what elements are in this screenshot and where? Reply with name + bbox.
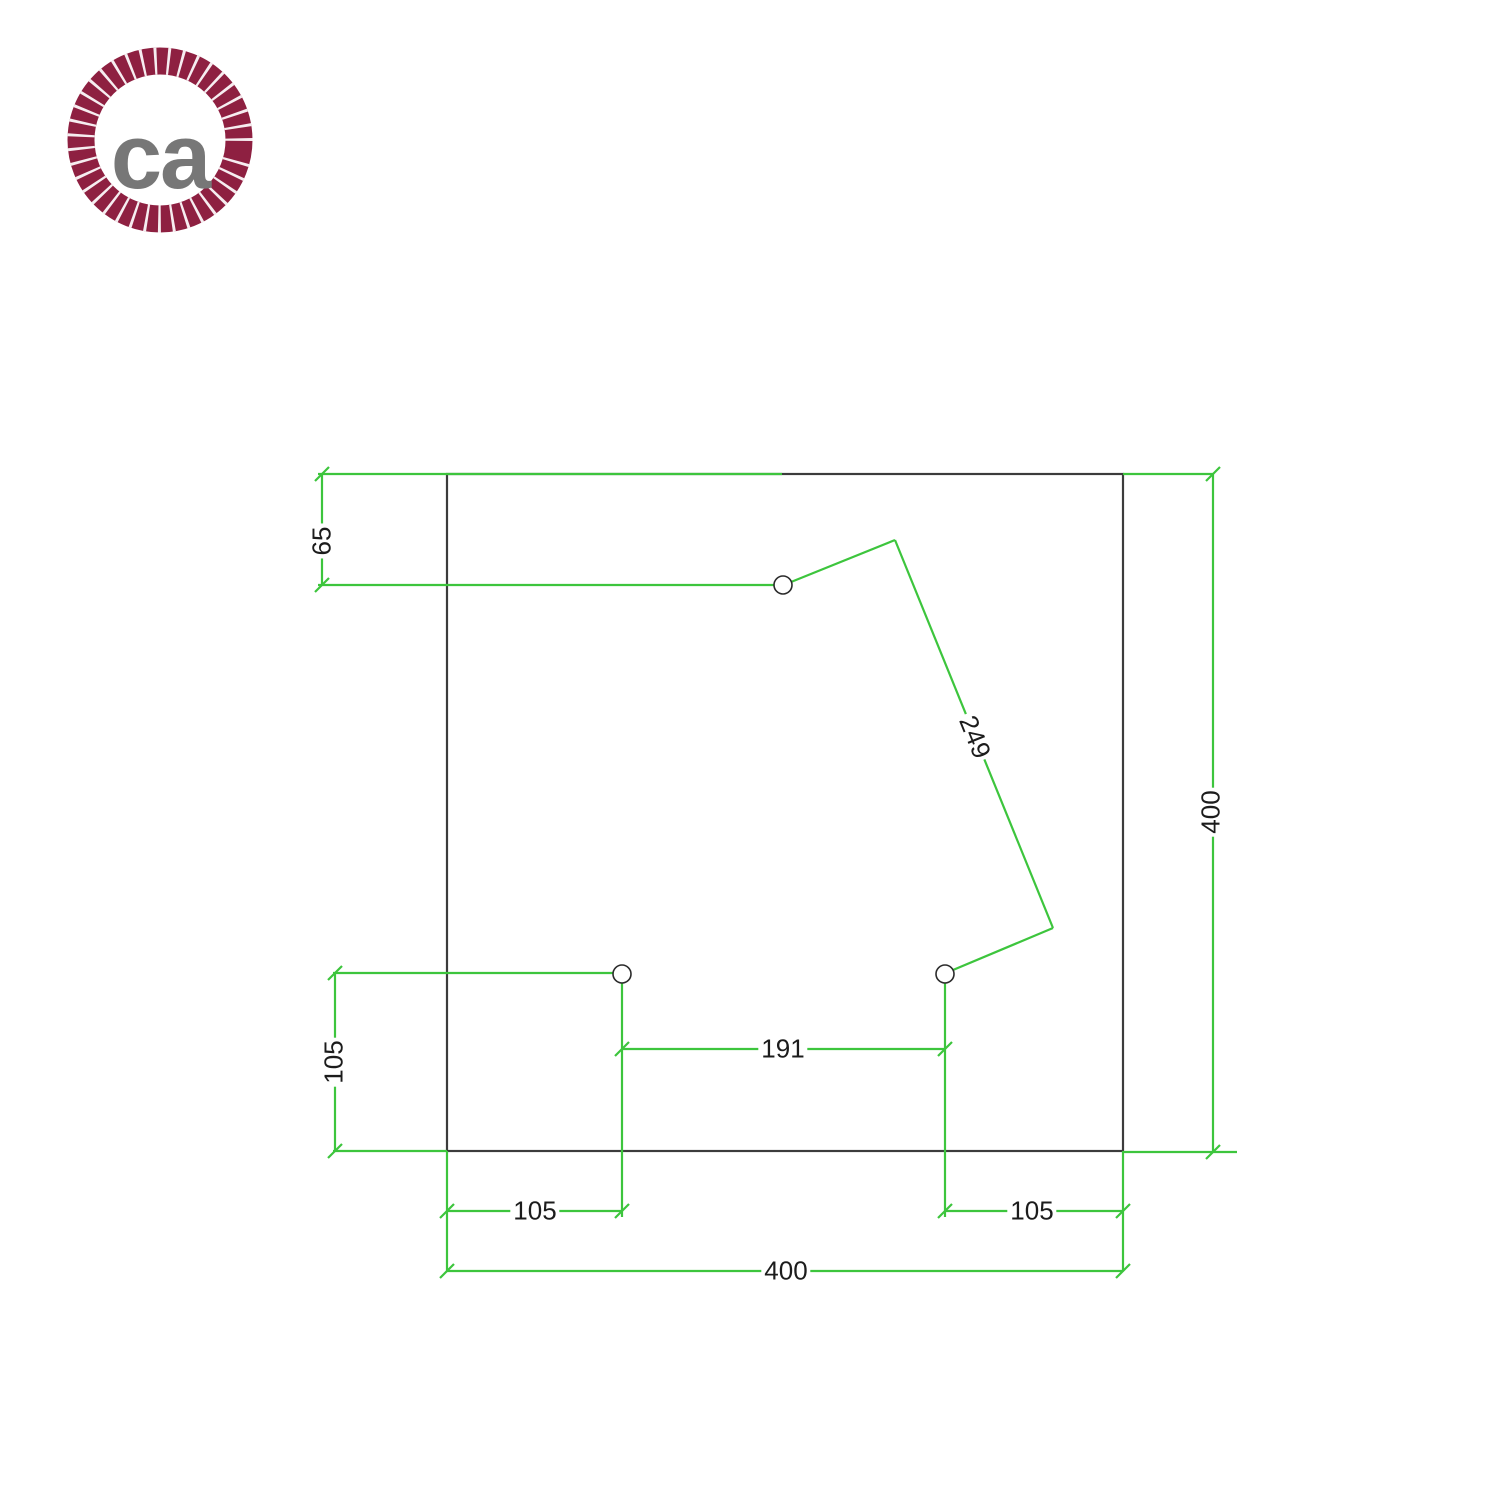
dimension-labels: 65 249 400 105 191 105 105 400 (0, 0, 1500, 1500)
dim-105-left-label: 105 (320, 1037, 349, 1086)
dim-65-label: 65 (308, 524, 337, 559)
dim-105-bottom-left-label: 105 (510, 1197, 559, 1226)
dim-191-label: 191 (758, 1035, 807, 1064)
dim-400-bottom-label: 400 (761, 1257, 810, 1286)
dim-249-label: 249 (952, 709, 997, 766)
dim-400-right-label: 400 (1197, 787, 1226, 836)
dim-105-bottom-right-label: 105 (1007, 1197, 1056, 1226)
page: { "logo": { "text": "ca", "ring_color": … (0, 0, 1500, 1500)
